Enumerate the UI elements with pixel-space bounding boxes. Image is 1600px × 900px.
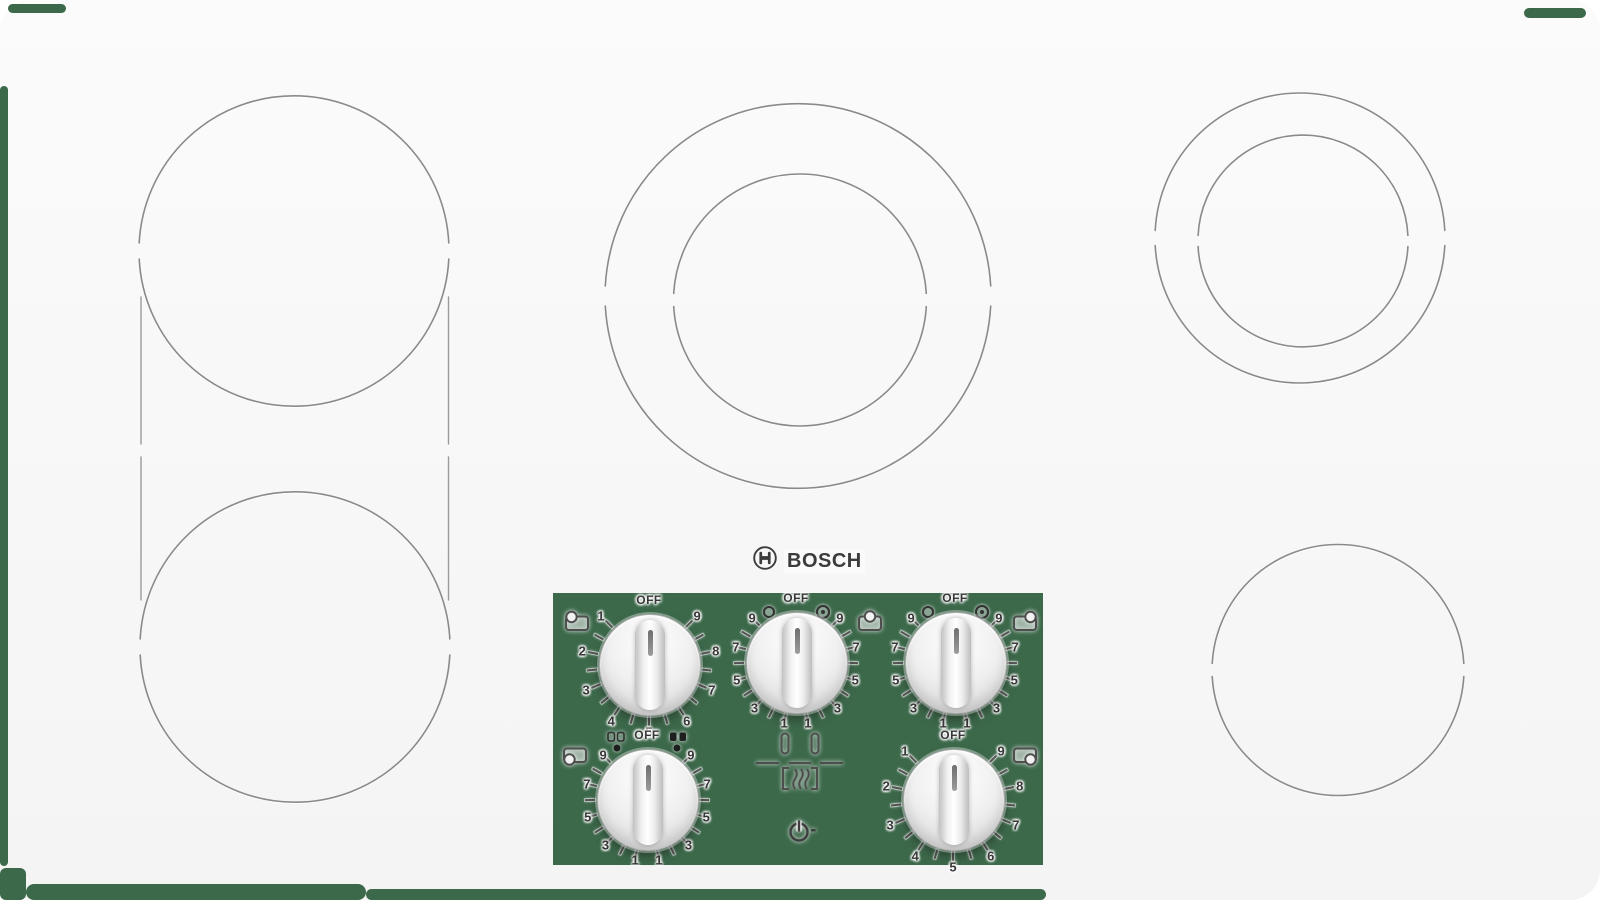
- knob-pointer-slot: [646, 765, 651, 791]
- scale-tick: [690, 826, 700, 833]
- transparency-artifact: [8, 4, 66, 13]
- off-label: OFF: [634, 728, 660, 742]
- scale-tick: [1007, 662, 1017, 664]
- scale-tick: [908, 754, 916, 762]
- bridge-element-diagram: [756, 732, 844, 794]
- scale-number: 9: [687, 748, 694, 763]
- knob-grip: [635, 620, 665, 710]
- scale-number: 5: [733, 673, 740, 688]
- bridge-zone-outline: [141, 297, 449, 600]
- transparency-artifact: [366, 889, 1046, 900]
- scale-tick: [700, 651, 710, 655]
- scale-tick: [742, 631, 752, 638]
- off-label: OFF: [940, 728, 966, 742]
- scale-number: 7: [732, 640, 739, 655]
- scale-tick: [743, 689, 753, 696]
- scale-tick: [689, 696, 698, 704]
- scale-number: 7: [1012, 818, 1019, 833]
- knob-pointer-slot: [954, 628, 959, 654]
- transparency-artifact: [0, 86, 8, 866]
- scale-number: 9: [693, 608, 700, 623]
- transparency-artifact: [0, 868, 26, 900]
- right-rear-burner-ring: [1155, 93, 1445, 383]
- right-rear-knob-assembly: 9753197531OFF: [880, 587, 1030, 737]
- knob-grip: [941, 618, 971, 708]
- scale-tick: [977, 708, 983, 718]
- scale-number: 7: [583, 777, 590, 792]
- center-knob[interactable]: [746, 612, 848, 714]
- scale-tick: [893, 662, 903, 664]
- scale-tick: [663, 713, 668, 723]
- scale-tick: [904, 831, 913, 839]
- scale-tick: [818, 708, 824, 718]
- scale-tick: [701, 668, 711, 671]
- scale-number: 5: [892, 673, 899, 688]
- bridge-closed-icon: [669, 732, 687, 743]
- scale-tick: [892, 786, 902, 790]
- scale-tick: [895, 818, 905, 824]
- cooktop-product-image: BOSCH 123456789OFF97: [0, 0, 1600, 900]
- scale-tick: [594, 826, 604, 833]
- scale-tick: [989, 754, 997, 762]
- center-knob-assembly: 9753197531OFF: [721, 587, 871, 737]
- scale-tick: [839, 689, 849, 696]
- scale-number: 1: [781, 715, 788, 730]
- left-front-knob[interactable]: [597, 749, 699, 851]
- scale-tick: [998, 769, 1008, 775]
- scale-tick: [967, 848, 972, 858]
- scale-number: 3: [887, 818, 894, 833]
- scale-number: 7: [1012, 640, 1019, 655]
- scale-tick: [734, 662, 744, 664]
- burner-position-bottom-right-icon: [1010, 742, 1040, 766]
- scale-tick: [697, 683, 707, 689]
- scale-number: 3: [834, 701, 841, 716]
- scale-number: 3: [602, 838, 609, 853]
- scale-number: 1: [901, 743, 908, 758]
- scale-number: 6: [987, 848, 994, 863]
- scale-number: 5: [949, 860, 956, 875]
- scale-tick: [767, 708, 773, 718]
- left-rear-knob[interactable]: [599, 614, 701, 716]
- scale-number: 9: [836, 611, 843, 626]
- single-zone-circle-icon: [922, 606, 934, 618]
- control-panel: 123456789OFF9753197531OFF9753197531OFF97…: [553, 593, 1043, 865]
- scale-number: 1: [655, 852, 662, 867]
- bosch-logo: BOSCH: [752, 545, 865, 576]
- scale-number: 3: [993, 701, 1000, 716]
- scale-number: 7: [891, 640, 898, 655]
- scale-tick: [591, 683, 601, 689]
- burner-position-top-right-icon: [1010, 610, 1040, 634]
- bosch-armature-icon: [752, 545, 778, 576]
- knob-pointer-slot: [795, 628, 800, 654]
- burner-position-top-left-icon: [562, 610, 592, 634]
- scale-number: 1: [597, 608, 604, 623]
- scale-number: 9: [997, 743, 1004, 758]
- scale-number: 5: [1011, 673, 1018, 688]
- transparency-artifact: [26, 884, 366, 900]
- scale-number: 5: [703, 810, 710, 825]
- scale-number: 2: [579, 643, 586, 658]
- scale-tick: [587, 668, 597, 671]
- center-burner-ring: [605, 104, 990, 489]
- burner-position-bottom-left-icon: [560, 742, 590, 766]
- scale-tick: [593, 768, 603, 775]
- left-front-burner-ring: [140, 492, 450, 802]
- scale-tick: [934, 848, 939, 858]
- scale-tick: [588, 651, 598, 655]
- knob-pointer-slot: [648, 630, 653, 656]
- scale-number: 1: [632, 852, 639, 867]
- scale-number: 7: [704, 777, 711, 792]
- scale-number: 7: [853, 640, 860, 655]
- scale-number: 9: [749, 611, 756, 626]
- scale-tick: [998, 689, 1008, 696]
- scale-tick: [993, 831, 1002, 839]
- knob-pointer-slot: [952, 765, 957, 791]
- scale-number: 9: [908, 611, 915, 626]
- scale-tick: [1005, 803, 1015, 806]
- knob-grip: [633, 755, 663, 845]
- transparency-artifact: [1524, 8, 1586, 18]
- scale-tick: [902, 689, 912, 696]
- single-zone-circle-icon: [763, 606, 775, 618]
- scale-number: 9: [600, 748, 607, 763]
- right-front-knob-assembly: 123456789OFF: [878, 724, 1028, 874]
- scale-tick: [848, 662, 858, 664]
- scale-number: 3: [685, 838, 692, 853]
- scale-tick: [630, 713, 635, 723]
- scale-number: 8: [1016, 778, 1023, 793]
- scale-number: 3: [751, 701, 758, 716]
- brand-wordmark: BOSCH: [784, 549, 865, 573]
- scale-tick: [841, 631, 851, 638]
- scale-number: 9: [995, 611, 1002, 626]
- scale-number: 4: [912, 848, 919, 863]
- off-label: OFF: [636, 593, 662, 607]
- scale-tick: [891, 803, 901, 806]
- scale-tick: [898, 769, 908, 775]
- scale-tick: [694, 634, 704, 640]
- off-label: OFF: [783, 591, 809, 605]
- scale-tick: [1000, 631, 1010, 638]
- right-front-burner-ring: [1212, 544, 1464, 795]
- scale-number: 1: [804, 715, 811, 730]
- bridge-open-icon: [607, 732, 625, 743]
- scale-number: 2: [883, 778, 890, 793]
- scale-tick: [604, 619, 612, 627]
- scale-number: 8: [712, 643, 719, 658]
- scale-tick: [692, 768, 702, 775]
- zone-select-dot: [674, 745, 681, 752]
- scale-number: 3: [583, 683, 590, 698]
- right-front-knob[interactable]: [903, 749, 1005, 851]
- scale-tick: [1004, 786, 1014, 790]
- scale-tick: [685, 619, 693, 627]
- zone-select-dot: [614, 745, 621, 752]
- off-label: OFF: [942, 591, 968, 605]
- scale-tick: [618, 845, 624, 855]
- scale-number: 5: [584, 810, 591, 825]
- scale-tick: [901, 631, 911, 638]
- scale-number: 3: [910, 701, 917, 716]
- scale-tick: [926, 708, 932, 718]
- scale-tick: [699, 799, 709, 801]
- knob-grip: [939, 755, 969, 845]
- left-front-knob-assembly: 9753197531OFF: [572, 724, 722, 874]
- scale-number: 7: [708, 683, 715, 698]
- power-indicator-icon: [785, 818, 817, 844]
- scale-tick: [600, 696, 609, 704]
- right-rear-knob[interactable]: [905, 612, 1007, 714]
- scale-number: 5: [852, 673, 859, 688]
- scale-tick: [594, 634, 604, 640]
- left-rear-knob-assembly: 123456789OFF: [574, 589, 724, 739]
- scale-tick: [669, 845, 675, 855]
- left-rear-burner-ring: [139, 96, 449, 406]
- scale-tick: [1001, 818, 1011, 824]
- scale-tick: [585, 799, 595, 801]
- knob-grip: [782, 618, 812, 708]
